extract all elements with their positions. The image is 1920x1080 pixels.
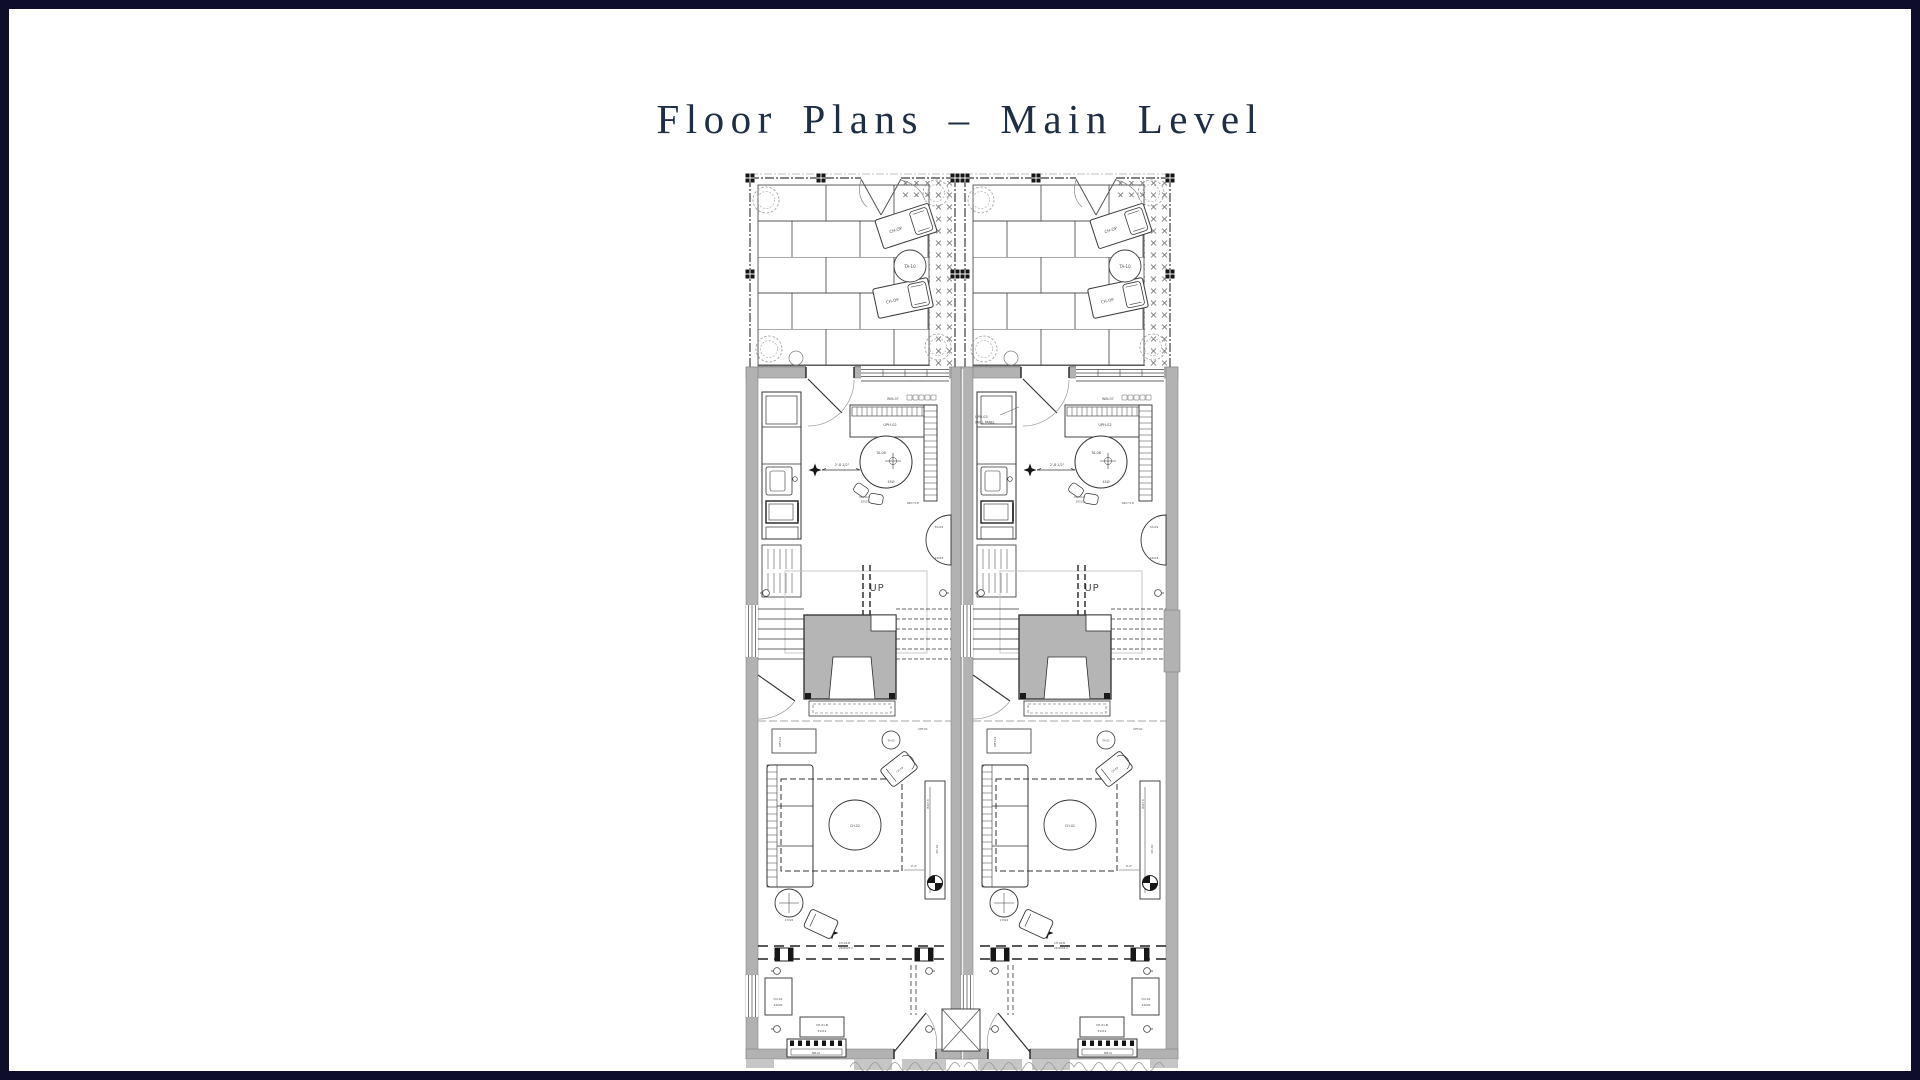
slide: Floor Plans – Main Level [0, 0, 1920, 1080]
label-entry-bench-size-a: 31X14 [818, 1029, 827, 1033]
label-entry-bench-a: CH-01-B [816, 1023, 828, 1027]
page-title: Floor Plans – Main Level [9, 95, 1911, 143]
label-entry-console-a: CO-01 [773, 997, 782, 1001]
unit-a-entry [746, 946, 963, 1072]
label-entry-console-b: CO-01 [1141, 997, 1150, 1001]
label-entry-bench-b: CH-01-B [1096, 1023, 1108, 1027]
label-entry-console-size-b: 24X20 [1142, 1003, 1151, 1007]
unit-b-plan [961, 174, 1179, 1060]
east-wall-jog [1164, 610, 1180, 672]
unit-a-plan [746, 174, 964, 1060]
label-entry-shoe-b: WB-01 [1104, 1051, 1113, 1055]
unit-b-entry [961, 946, 1178, 1072]
label-entry-console-size-a: 24X20 [774, 1003, 783, 1007]
label-entry-bench-size-b: 31X14 [1098, 1029, 1107, 1033]
label-entry-shoe-a: WB-01 [812, 1051, 821, 1055]
label-wall-panel-1: UPH-03 [975, 415, 988, 419]
label-wall-panel-2: WALL PANEL [975, 421, 995, 425]
floor-plan-drawing: CH-OP CH-OP TA-10 [737, 157, 1211, 1075]
